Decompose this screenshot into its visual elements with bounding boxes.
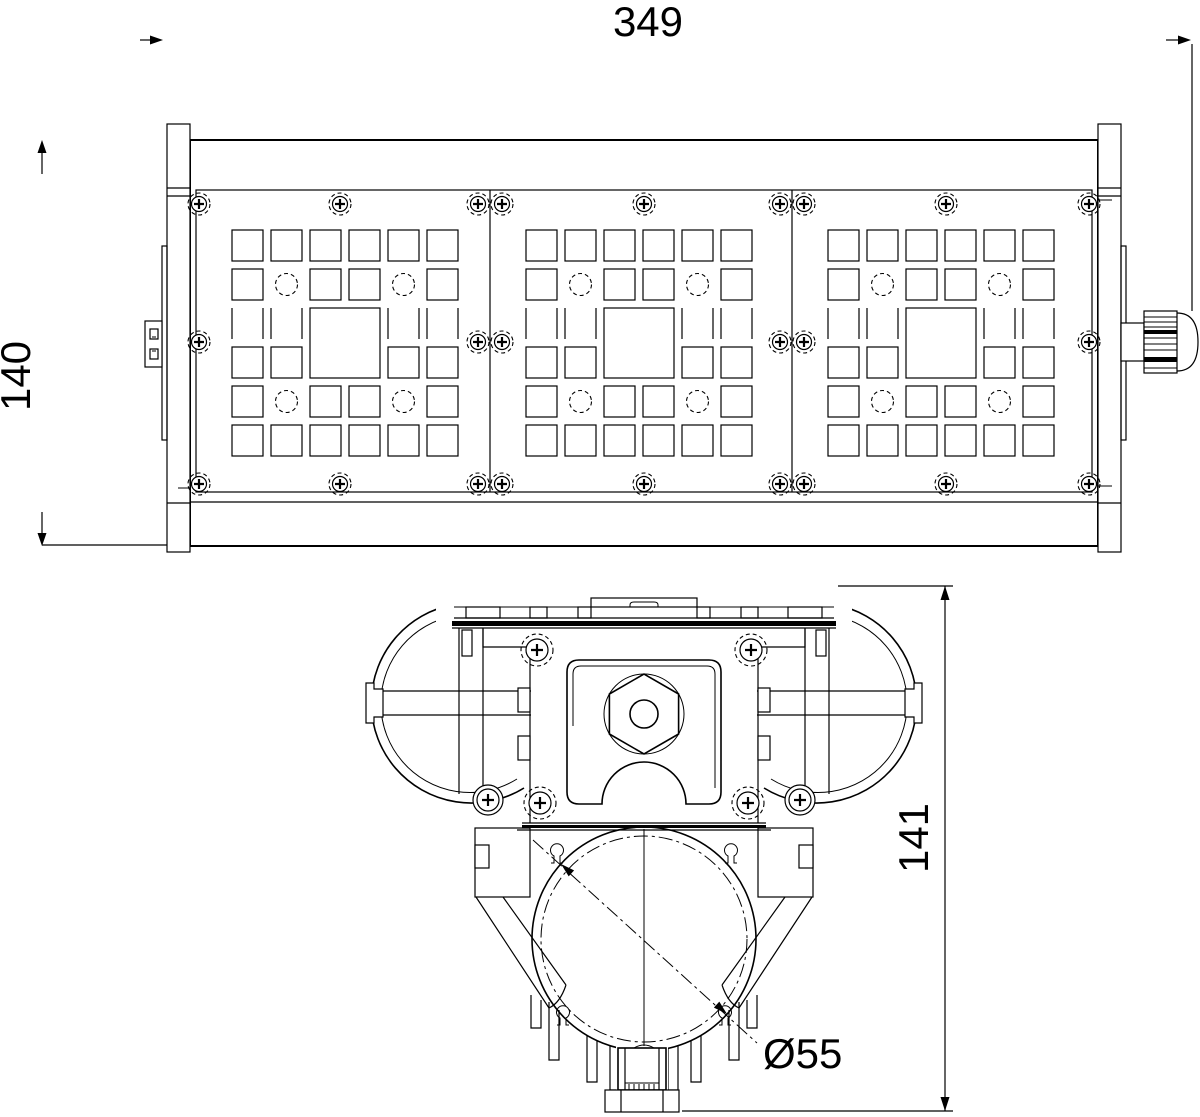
dim-height: 140 — [0, 140, 167, 546]
bottom-bolt — [605, 1045, 679, 1112]
bottom-plate — [517, 823, 771, 830]
dim-section-height-label: 141 — [890, 803, 937, 873]
mounting-pipe — [532, 827, 756, 1051]
cable-gland — [1121, 311, 1198, 373]
wing-right — [750, 603, 922, 803]
dim-diameter-label: Ø55 — [763, 1030, 842, 1077]
front-view: 349 140 — [0, 0, 1198, 552]
hex-head — [605, 1090, 679, 1112]
bracket-plate-left — [162, 246, 167, 440]
section-view: Ø55 141 — [366, 584, 953, 1112]
connector — [145, 321, 162, 367]
dim-width-label: 349 — [613, 0, 683, 45]
drawing-page: 349 140 — [0, 0, 1200, 1117]
fins-right — [668, 995, 757, 1090]
fins-left — [531, 995, 620, 1090]
wing-left — [366, 603, 538, 803]
drawing-canvas: 349 140 — [0, 0, 1200, 1117]
dim-height-label: 140 — [0, 341, 39, 411]
gland-dome — [1177, 313, 1198, 371]
housing — [145, 124, 1198, 552]
